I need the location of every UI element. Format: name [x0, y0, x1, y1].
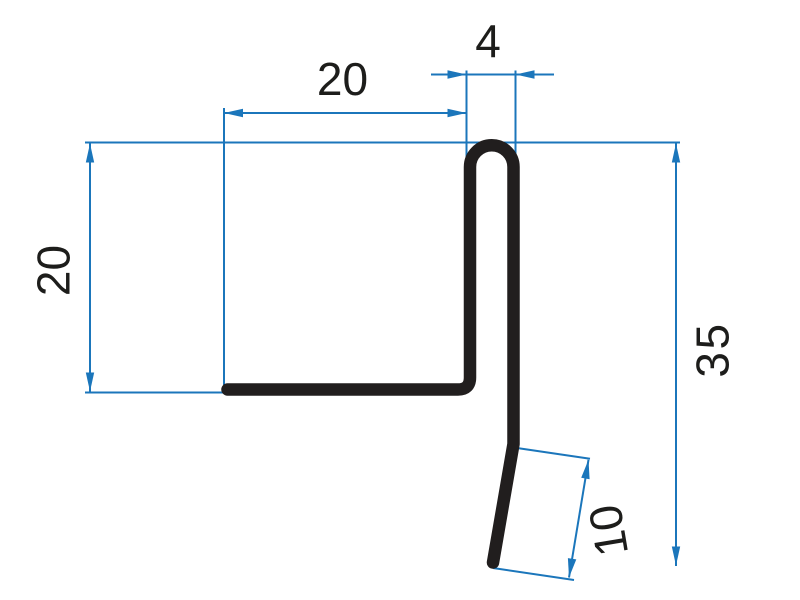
svg-text:20: 20	[317, 53, 368, 105]
svg-text:35: 35	[687, 321, 739, 377]
svg-text:10: 10	[578, 501, 638, 560]
svg-text:20: 20	[28, 245, 80, 296]
svg-text:4: 4	[475, 15, 501, 67]
